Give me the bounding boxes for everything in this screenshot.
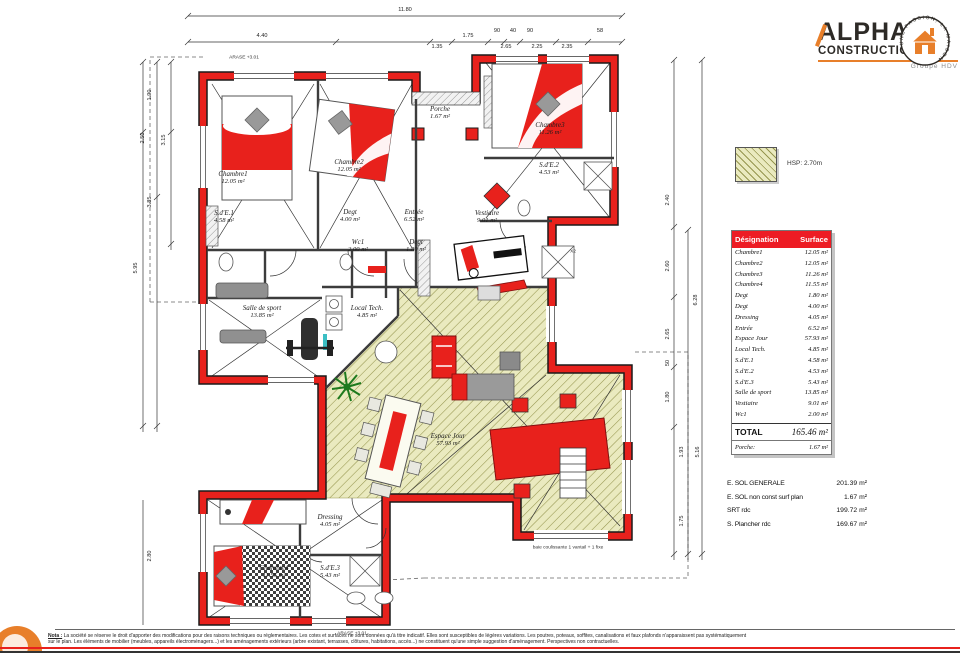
terrace-steps: [560, 448, 586, 498]
surface-row: Espace Jour57.93 m²: [732, 334, 831, 345]
surface-row: Degt4.00 m²: [732, 302, 831, 313]
office-desk: [454, 236, 528, 280]
totals-row: SRT rdc199.72 m²: [727, 504, 867, 518]
footer-red-line: [0, 647, 960, 649]
footer-disclaimer: Nota : La société se réserve le droit d'…: [48, 633, 928, 646]
bed-chambre2: [309, 99, 394, 181]
nota-label: Nota :: [48, 633, 62, 639]
area-totals: E. SOL GENERALE201.39 m²E. SOL non const…: [727, 477, 867, 531]
porche-value: 1.67 m²: [809, 444, 828, 451]
porche-label: Porche:: [735, 444, 755, 451]
surface-row: Chambre411.55 m²: [732, 280, 831, 291]
footer-black-line: [0, 651, 960, 653]
totals-row: E. SOL GENERALE201.39 m²: [727, 477, 867, 491]
totals-row: E. SOL non const surf plan1.67 m²: [727, 491, 867, 505]
surface-row: Chambre311.26 m²: [732, 270, 831, 281]
surface-table-header: Désignation Surface: [732, 231, 831, 248]
surface-row: S.d'E.35.43 m²: [732, 378, 831, 389]
legend-hatch-swatch: [735, 147, 777, 182]
tv-media-unit: [432, 336, 456, 378]
logo-stamp: UNE PASSION, LA MAISON: [896, 12, 954, 70]
surface-row: Chambre212.05 m²: [732, 259, 831, 270]
drawing-sheet: Chambre112.05 m²Chambre212.05 m²Chambre3…: [0, 0, 960, 653]
total-label: TOTAL: [735, 427, 763, 437]
total-value: 165.46 m²: [792, 427, 828, 437]
surface-table-total-row: TOTAL 165.46 m²: [732, 423, 831, 440]
surface-row: Dressing4.05 m²: [732, 313, 831, 324]
surface-row: Entrée6.52 m²: [732, 324, 831, 335]
surface-row: Salle de sport13.85 m²: [732, 388, 831, 399]
surface-table-rows: Chambre112.05 m²Chambre212.05 m²Chambre3…: [732, 248, 831, 421]
surface-row: Wc12.00 m²: [732, 410, 831, 421]
surface-row: Vestiaire9.01 m²: [732, 399, 831, 410]
nota-line1: La société se réserve le droit d'apporte…: [64, 633, 747, 639]
company-logo: ALPHA CONSTRUCTIONS Groupe HDV UNE PASSI…: [818, 20, 958, 104]
surface-row: S.d'E.24.53 m²: [732, 367, 831, 378]
office-chair: [478, 286, 500, 300]
surface-row: Local Tech.4.85 m²: [732, 345, 831, 356]
daybed: [220, 500, 306, 524]
surface-table: Désignation Surface Chambre112.05 m²Cham…: [731, 230, 832, 455]
surface-row: S.d'E.14.58 m²: [732, 356, 831, 367]
surface-row: Degt1.80 m²: [732, 291, 831, 302]
header-designation: Désignation: [735, 236, 778, 244]
legend: HSP: 2.70m: [735, 147, 885, 183]
bed-chambre4: [214, 546, 310, 606]
footer-rule: [55, 629, 955, 630]
header-surface: Surface: [800, 236, 828, 244]
surface-row: Chambre112.05 m²: [732, 248, 831, 259]
bed-chambre1: [222, 96, 292, 200]
legend-label: HSP: 2.70m: [787, 160, 822, 167]
nota-line2: sur le plan. Les éléments de mobilier (m…: [48, 639, 619, 645]
hall-red-shelf: [368, 266, 386, 273]
bed-chambre3: [492, 64, 582, 148]
surface-table-porche-row: Porche: 1.67 m²: [732, 440, 831, 454]
floor-plan-drawing: [0, 0, 720, 653]
totals-row: S. Plancher rdc169.67 m²: [727, 518, 867, 532]
